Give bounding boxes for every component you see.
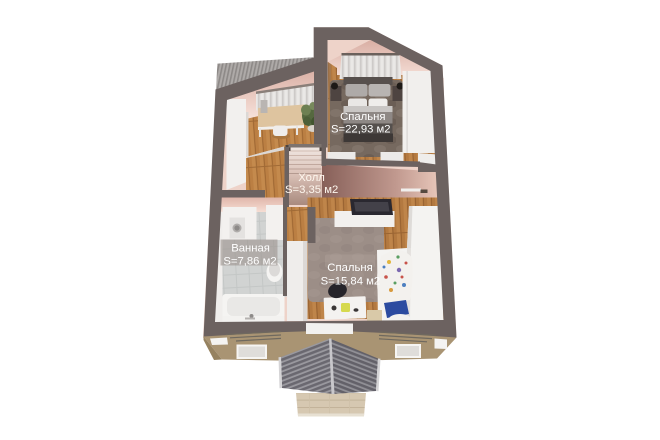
svg-text:Холл: Холл [298,172,325,184]
svg-text:Ванная: Ванная [231,243,270,255]
svg-text:S=3,35 м2: S=3,35 м2 [285,184,338,196]
svg-text:S=22,93 м2: S=22,93 м2 [331,124,391,136]
svg-text:S=7,86 м2: S=7,86 м2 [223,256,276,268]
svg-text:S=15,84 м2: S=15,84 м2 [321,275,381,287]
svg-text:Спальня: Спальня [340,111,385,123]
svg-text:Спальня: Спальня [327,262,372,274]
